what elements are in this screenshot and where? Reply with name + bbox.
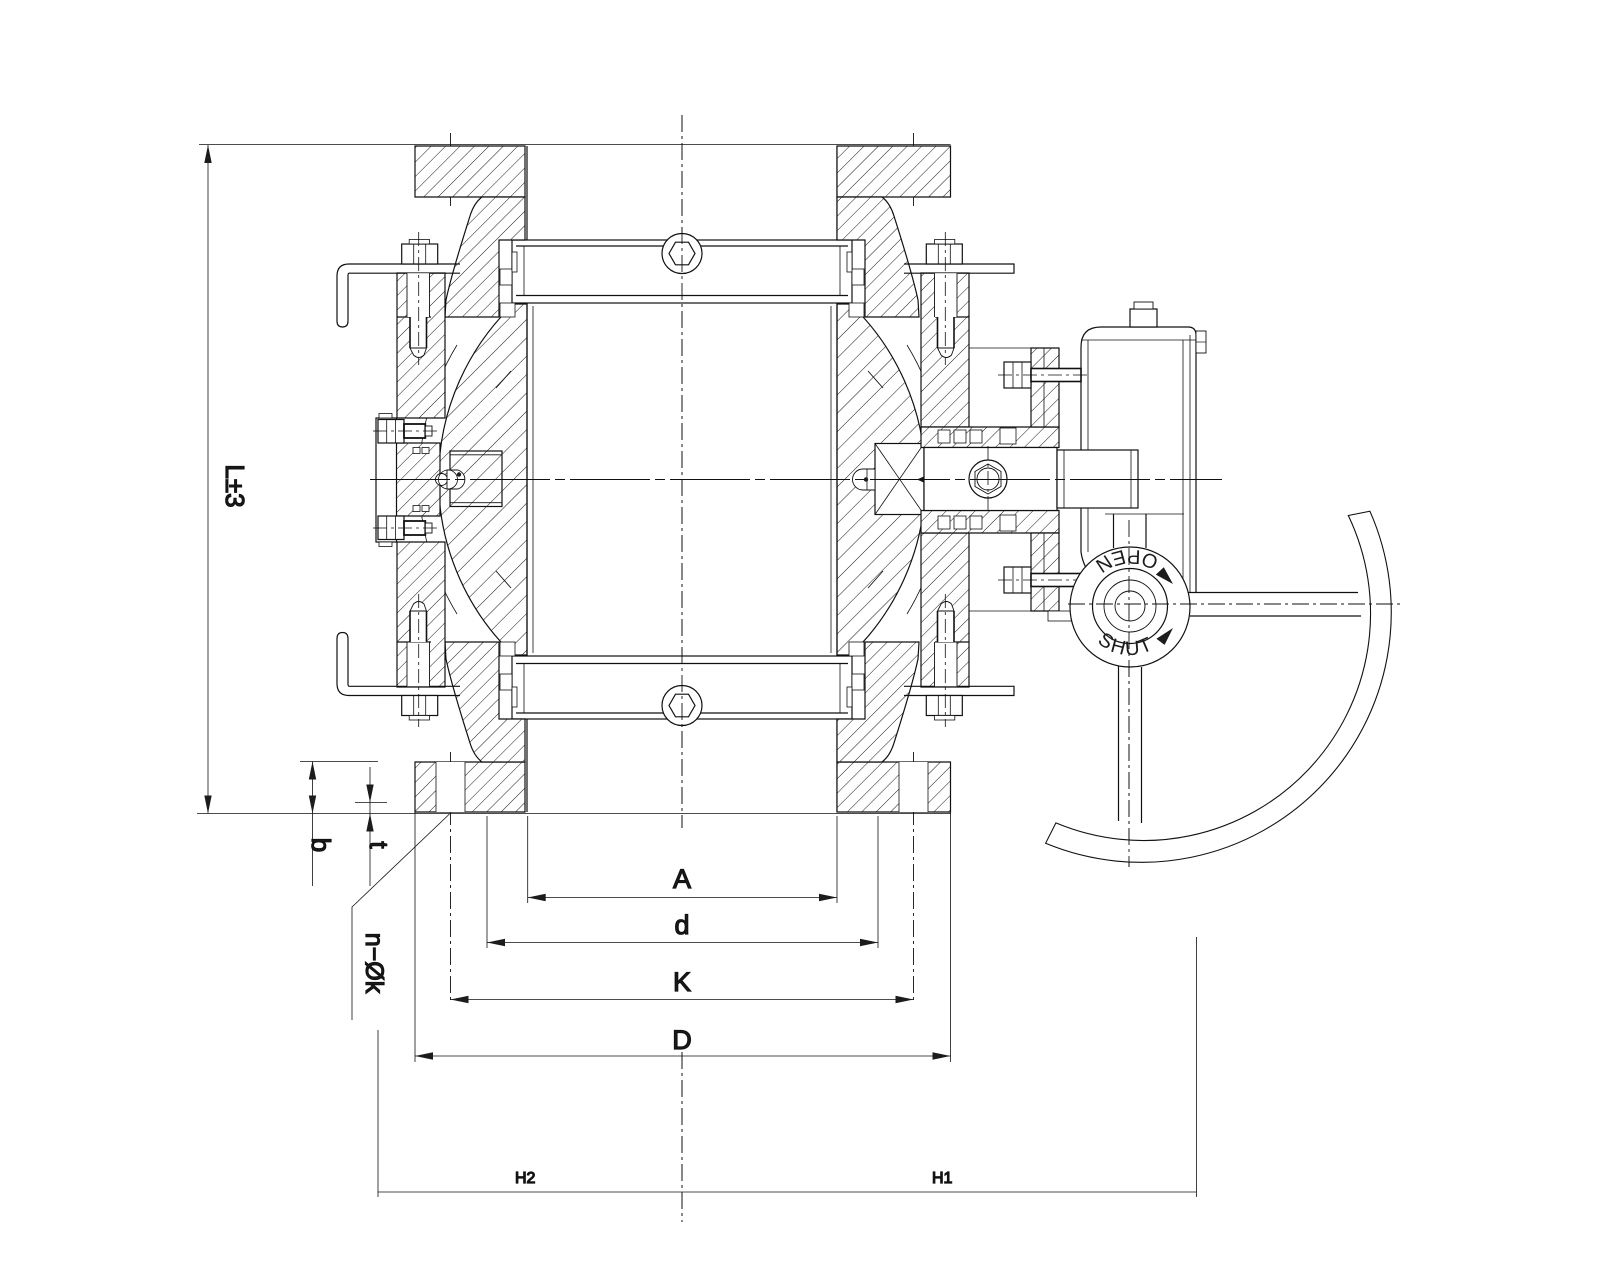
svg-text:D: D: [672, 1025, 692, 1055]
svg-text:b: b: [306, 838, 336, 852]
svg-text:H2: H2: [515, 1170, 536, 1187]
svg-text:A: A: [673, 864, 691, 894]
svg-text:t: t: [364, 841, 394, 849]
svg-text:d: d: [674, 910, 689, 940]
svg-text:L±3: L±3: [220, 464, 250, 507]
svg-text:H1: H1: [932, 1170, 953, 1187]
svg-text:K: K: [673, 967, 691, 997]
svg-text:n−Øk: n−Øk: [360, 933, 388, 994]
